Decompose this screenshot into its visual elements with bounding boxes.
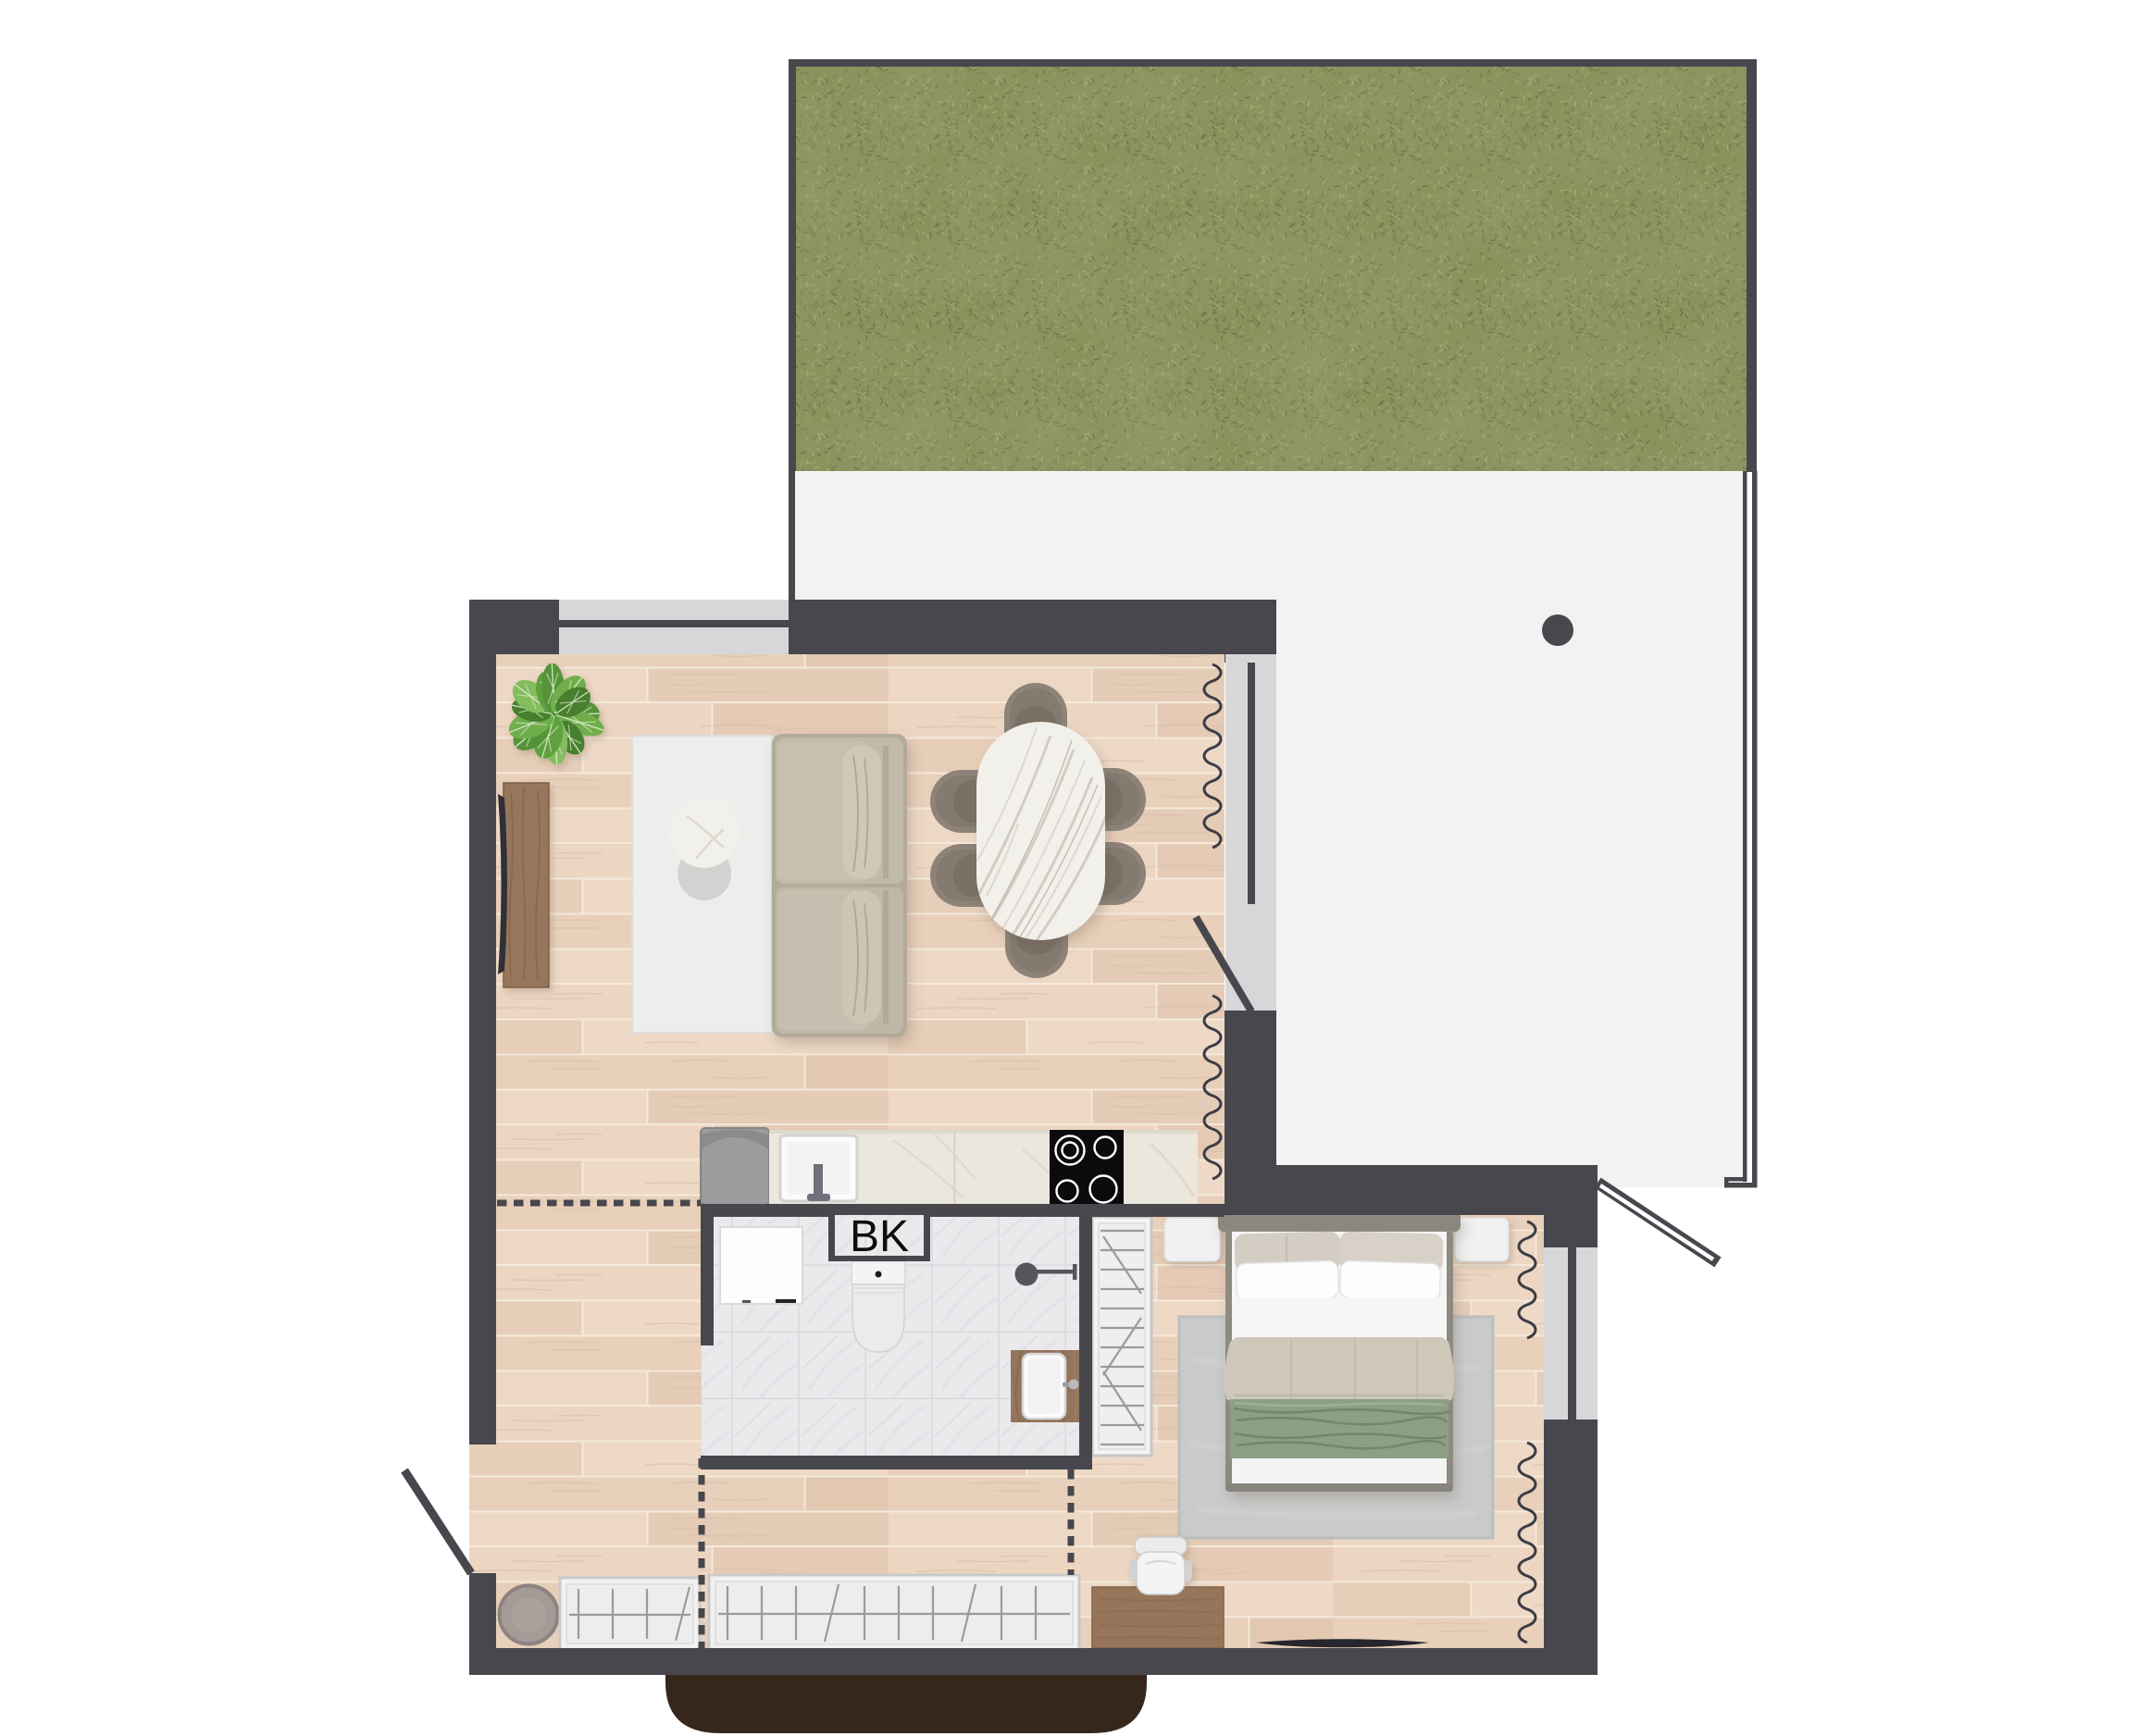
- svg-text:BK: BK: [850, 1212, 909, 1261]
